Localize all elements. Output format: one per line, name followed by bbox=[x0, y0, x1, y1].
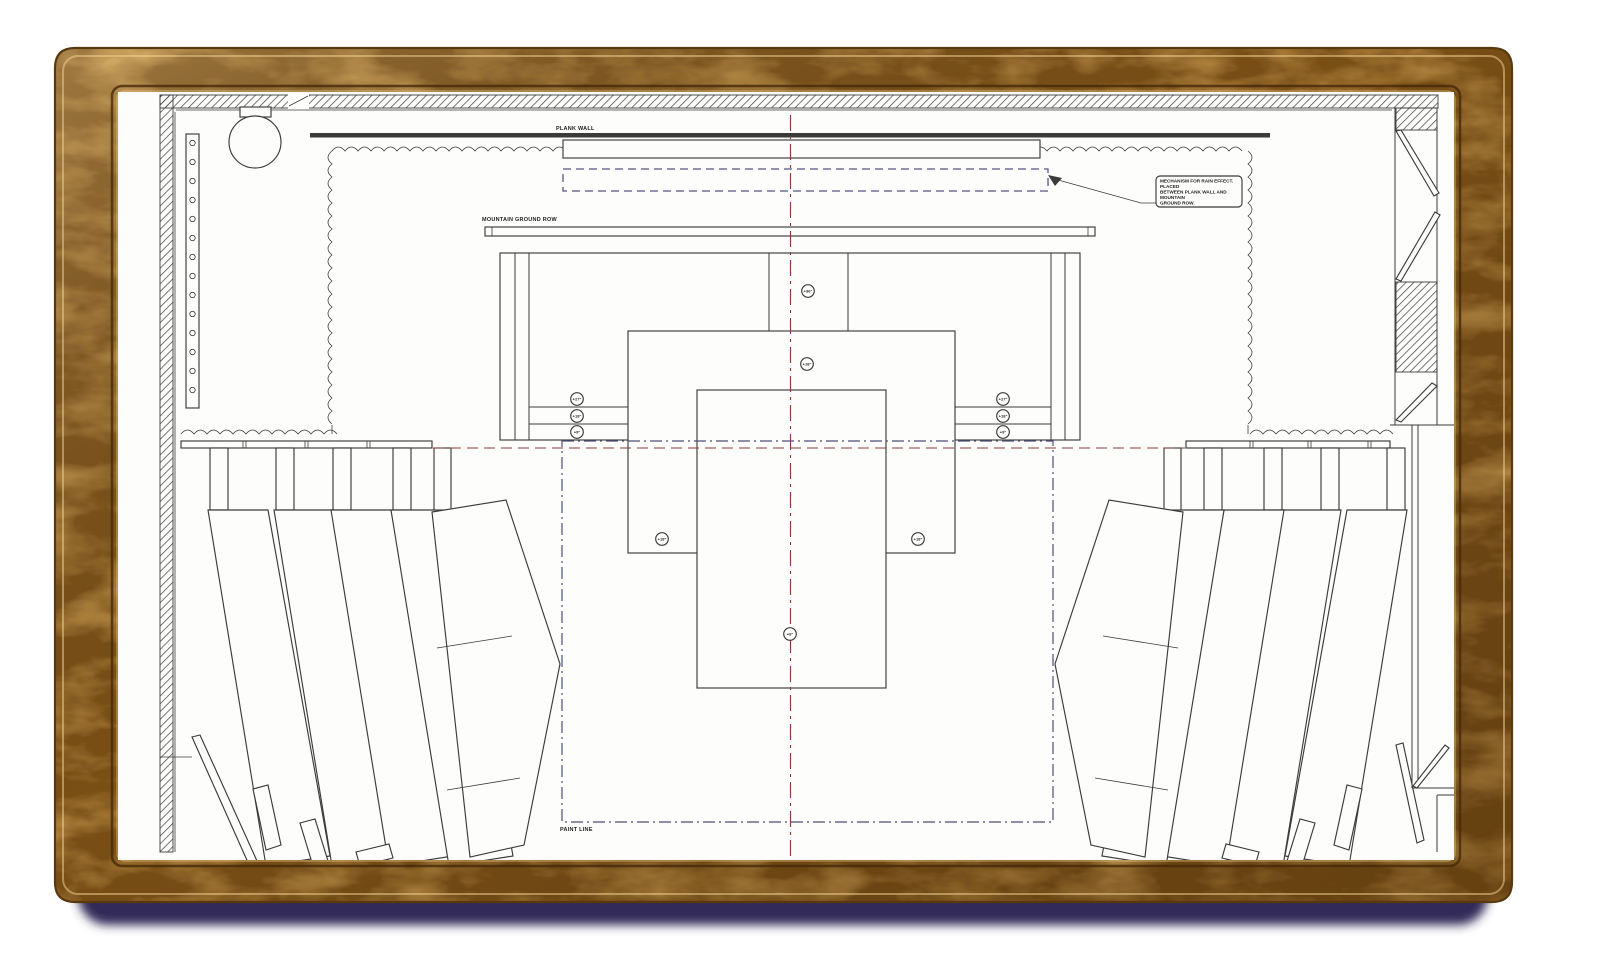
svg-text:+18": +18" bbox=[803, 362, 812, 367]
left-batten bbox=[181, 441, 432, 448]
elevation-marker: +18" bbox=[656, 533, 669, 546]
svg-text:+9": +9" bbox=[574, 430, 581, 435]
svg-text:+18": +18" bbox=[573, 414, 582, 419]
svg-text:+9": +9" bbox=[1000, 430, 1007, 435]
flat-hanger-tab bbox=[210, 448, 228, 510]
right-wall-pier bbox=[1396, 108, 1437, 130]
note-line: MOUNTAIN bbox=[1160, 195, 1186, 200]
note-line: PLACED bbox=[1160, 184, 1180, 189]
mountain-ground-row-label: MOUNTAIN GROUND ROW bbox=[482, 217, 557, 223]
flat-hanger-tab bbox=[434, 448, 451, 510]
svg-text:+18": +18" bbox=[658, 537, 667, 542]
front-platform bbox=[697, 390, 886, 688]
note-line: BETWEEN PLANK WALL AND bbox=[1160, 190, 1227, 195]
elevation-marker: +18" bbox=[801, 358, 814, 371]
plank-wall-label: PLANK WALL bbox=[556, 126, 595, 132]
elevation-marker: +18" bbox=[571, 410, 584, 423]
elevation-marker: +18" bbox=[912, 533, 925, 546]
elevation-marker: +9" bbox=[997, 426, 1010, 439]
paint-line-label: PAINT LINE bbox=[560, 827, 593, 833]
svg-text:+9": +9" bbox=[787, 632, 794, 637]
elevation-marker: +27" bbox=[997, 393, 1010, 406]
left-wall-hatch bbox=[160, 95, 173, 852]
top-wall-hatch bbox=[160, 95, 1438, 108]
elevation-marker: +27" bbox=[571, 393, 584, 406]
left-flats-bank bbox=[208, 448, 560, 866]
elevation-marker: +36" bbox=[802, 285, 815, 298]
svg-text:+27": +27" bbox=[573, 397, 582, 402]
right-flats-bank bbox=[1055, 448, 1407, 866]
flat-hanger-tab bbox=[393, 448, 411, 510]
pin-rail-strip bbox=[186, 134, 199, 408]
elevation-marker: +18" bbox=[997, 410, 1010, 423]
svg-text:+27": +27" bbox=[999, 397, 1008, 402]
flat-hanger-tab bbox=[333, 448, 351, 510]
right-wall-pier bbox=[1396, 282, 1437, 372]
svg-text:+36": +36" bbox=[804, 289, 813, 294]
svg-text:+18": +18" bbox=[914, 537, 923, 542]
round-column bbox=[229, 116, 281, 168]
note-line: MECHANISM FOR RAIN EFFECT. bbox=[1160, 179, 1233, 184]
elevation-marker: +9" bbox=[571, 426, 584, 439]
svg-text:+18": +18" bbox=[999, 414, 1008, 419]
elevation-marker: +9" bbox=[784, 628, 797, 641]
plan-canvas: PLANK WALL MOUNTAIN GROUND ROW bbox=[0, 0, 1600, 976]
framed-ground-plan: PLANK WALL MOUNTAIN GROUND ROW bbox=[0, 0, 1600, 976]
flat-hanger-tab bbox=[276, 448, 294, 510]
plank-wall-footing bbox=[563, 140, 1040, 158]
right-batten bbox=[1186, 441, 1390, 448]
note-line: GROUND ROW. bbox=[1160, 201, 1195, 206]
